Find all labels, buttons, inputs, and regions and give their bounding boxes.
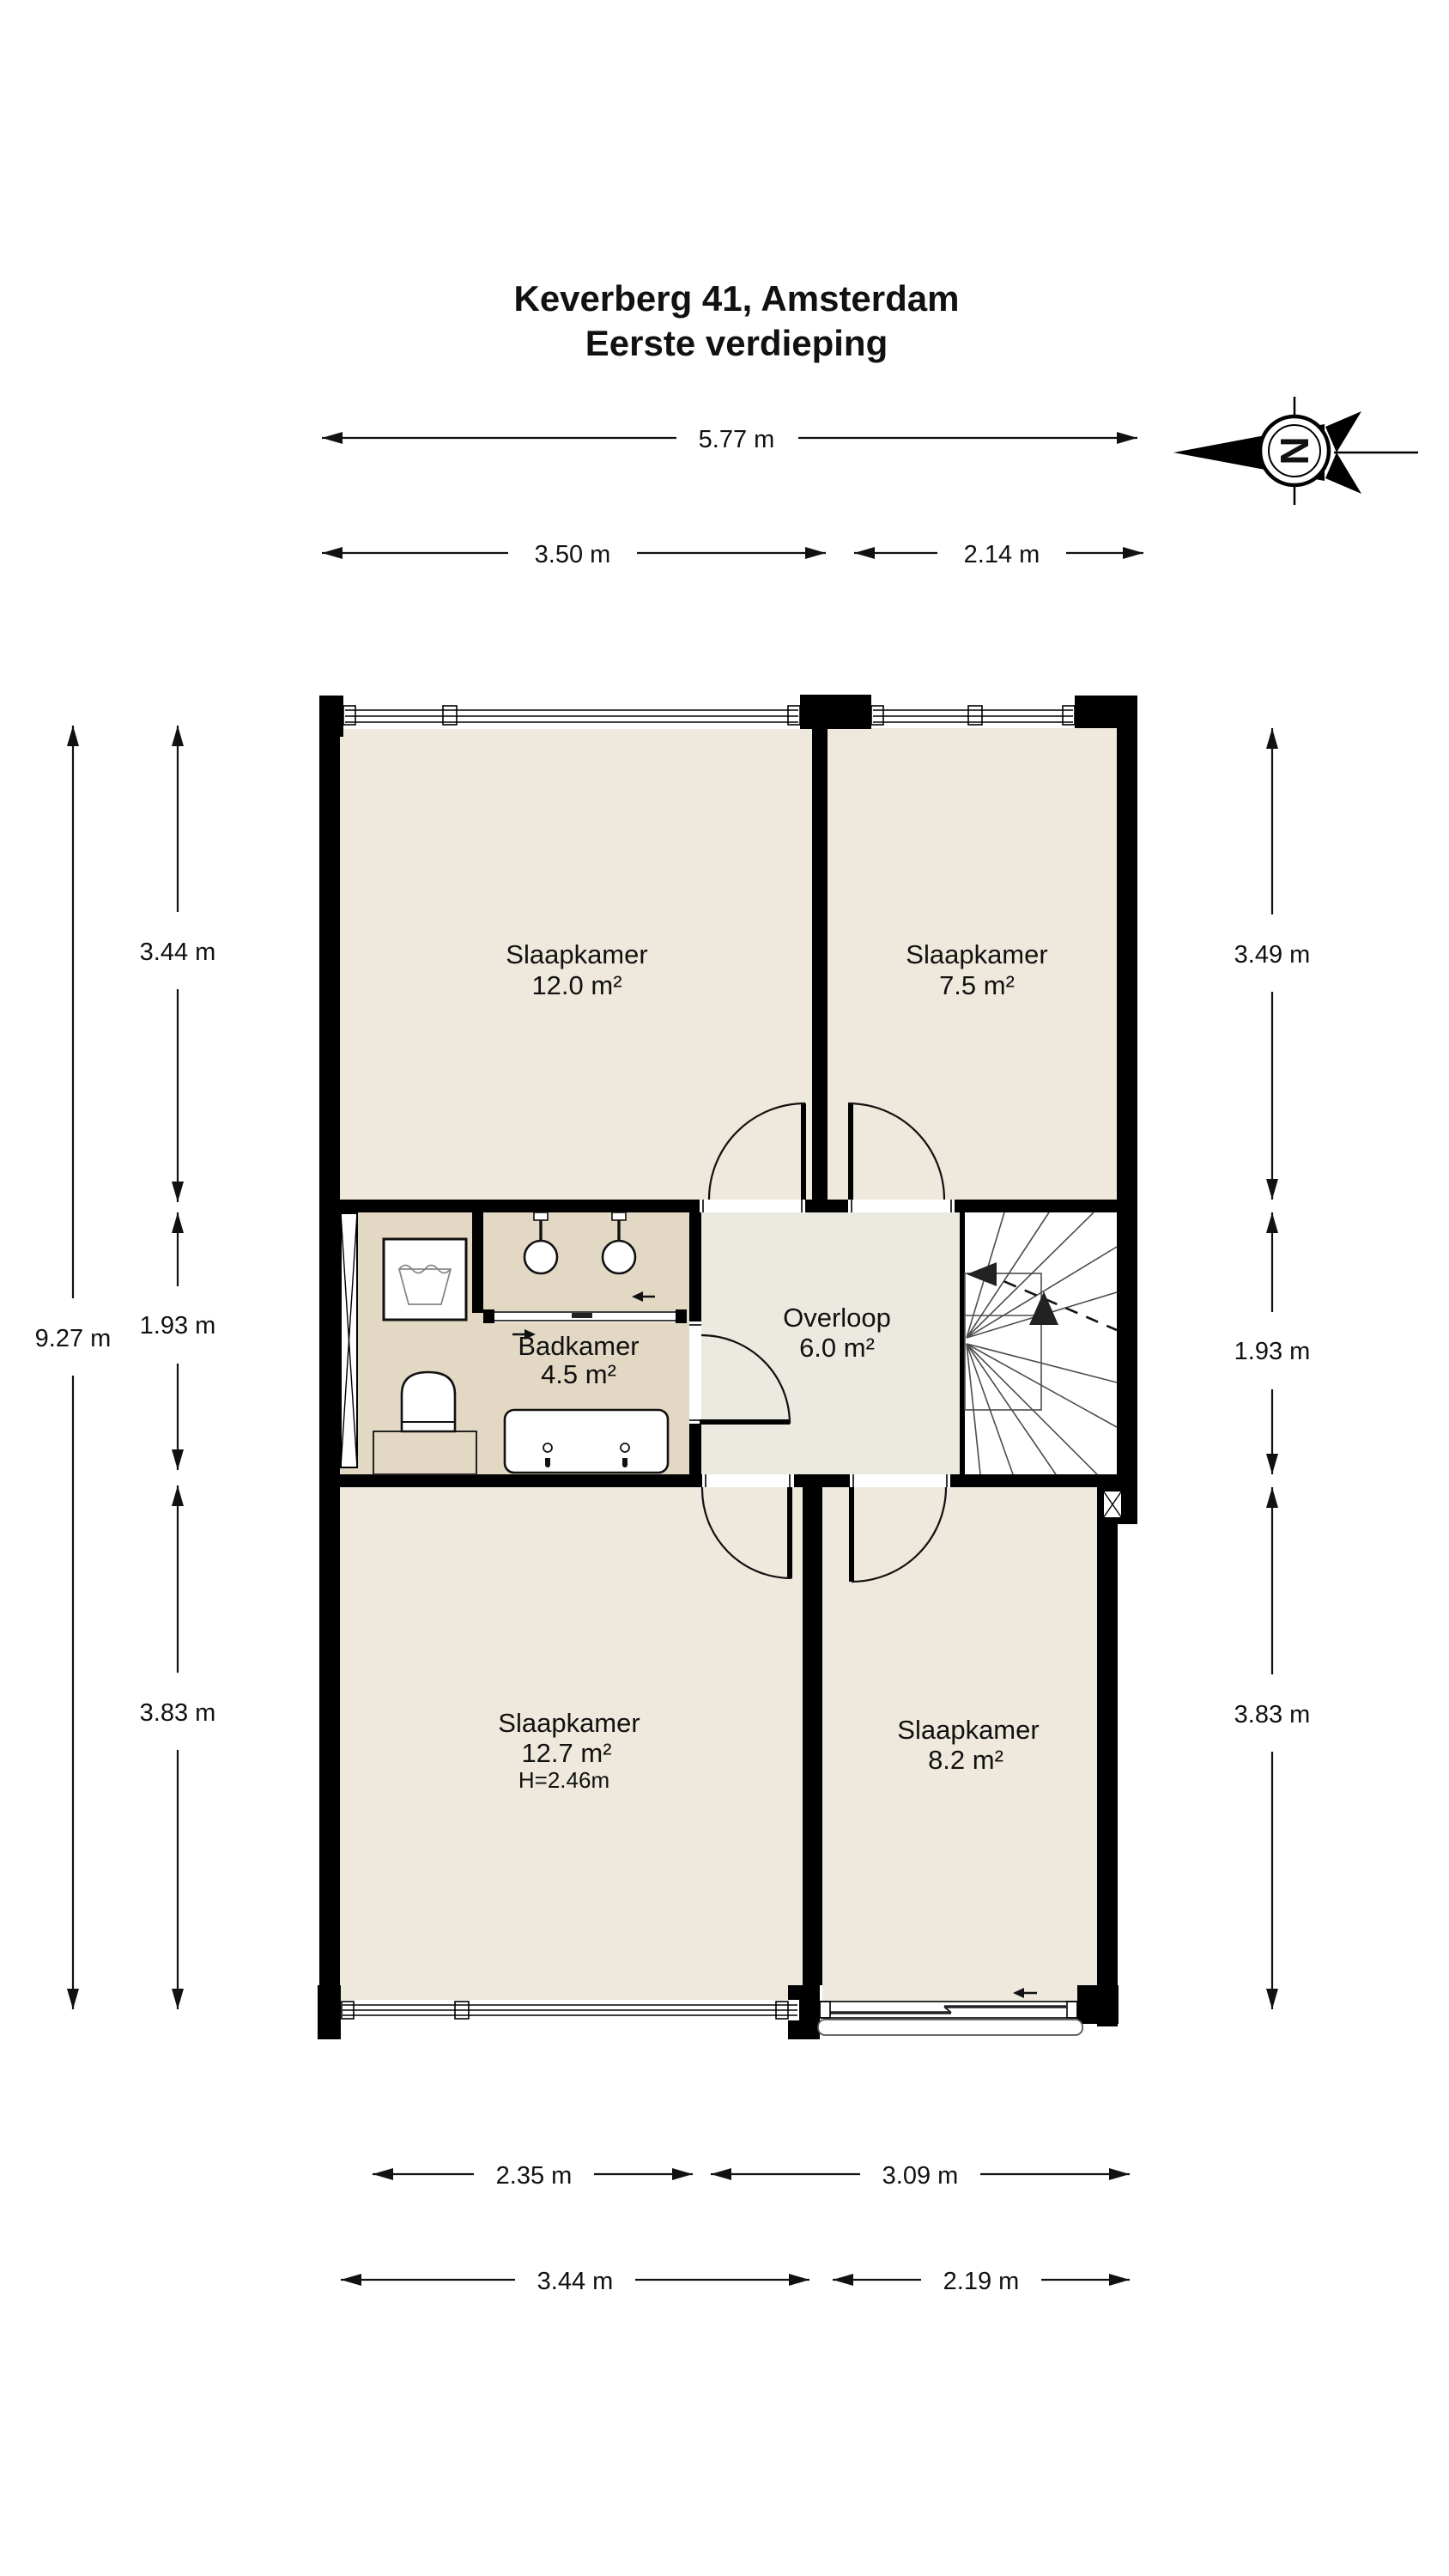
- dim-label: 9.27 m: [35, 1325, 112, 1352]
- compass-letter: N: [1272, 436, 1317, 465]
- dim-right-upper: 3.49 m: [1234, 728, 1311, 1200]
- dim-label: 3.50 m: [535, 541, 611, 568]
- dim-bottom-inner-right: 3.09 m: [711, 2162, 1130, 2190]
- dim-top-left: 3.50 m: [322, 541, 826, 568]
- sliding-door-badkamer: [483, 1309, 687, 1323]
- floorplan-drawing: Keverberg 41, Amsterdam Eerste verdiepin…: [0, 0, 1449, 2576]
- dim-bottom-outer-right: 2.19 m: [833, 2268, 1130, 2295]
- dim-top-total: 5.77 m: [322, 426, 1137, 453]
- washing-machine-icon: [384, 1239, 466, 1320]
- room-name: Overloop: [783, 1303, 891, 1333]
- room-area: 4.5 m²: [541, 1359, 616, 1389]
- room-area: 7.5 m²: [939, 970, 1015, 1000]
- dim-label: 5.77 m: [699, 426, 775, 453]
- dim-label: 3.44 m: [140, 939, 216, 966]
- room-height: H=2.46m: [518, 1767, 609, 1793]
- dim-right-middle: 1.93 m: [1234, 1212, 1311, 1474]
- dim-label: 2.14 m: [964, 541, 1040, 568]
- window-top-right: [871, 703, 1075, 727]
- window-bottom-left: [341, 2000, 799, 2020]
- dim-label: 2.35 m: [496, 2162, 573, 2190]
- dim-label: 2.19 m: [943, 2268, 1020, 2295]
- dim-label: 3.44 m: [537, 2268, 614, 2295]
- room-area: 12.0 m²: [531, 970, 621, 1000]
- room-floors: [340, 728, 1117, 2002]
- balcony-edge: [818, 2020, 1082, 2035]
- dim-label: 1.93 m: [1234, 1338, 1311, 1365]
- shaft-right: [1103, 1491, 1122, 1518]
- floorplan-page: Keverberg 41, Amsterdam Eerste verdiepin…: [0, 0, 1449, 2576]
- dim-left-upper: 3.44 m: [140, 726, 216, 1202]
- north-arrow-icon: N: [1173, 397, 1418, 505]
- room-area: 12.7 m²: [521, 1738, 611, 1768]
- page-title: Keverberg 41, Amsterdam Eerste verdiepin…: [513, 278, 959, 363]
- dim-left-total: 9.27 m: [35, 726, 112, 2009]
- sliding-door-balcony: [820, 2002, 1077, 2018]
- dim-label: 1.93 m: [140, 1312, 216, 1340]
- room-area: 8.2 m²: [928, 1745, 1003, 1775]
- dim-label: 3.49 m: [1234, 941, 1311, 969]
- dim-label: 3.83 m: [140, 1699, 216, 1727]
- room-name: Slaapkamer: [906, 939, 1047, 969]
- dim-label: 3.83 m: [1234, 1701, 1311, 1728]
- window-top-left: [343, 703, 800, 727]
- bathtub-icon: [505, 1410, 668, 1473]
- shaft-left: [341, 1213, 357, 1467]
- dim-left-lower: 3.83 m: [140, 1485, 216, 2009]
- title-line2: Eerste verdieping: [585, 323, 888, 363]
- dim-right-lower: 3.83 m: [1234, 1487, 1311, 2009]
- room-name: Slaapkamer: [897, 1715, 1039, 1745]
- room-name: Slaapkamer: [498, 1708, 640, 1738]
- dim-bottom-outer-left: 3.44 m: [341, 2268, 809, 2295]
- dim-bottom-inner-left: 2.35 m: [373, 2162, 693, 2190]
- room-area: 6.0 m²: [799, 1333, 875, 1363]
- title-line1: Keverberg 41, Amsterdam: [513, 278, 959, 319]
- dim-left-middle: 1.93 m: [140, 1212, 216, 1470]
- dim-top-right: 2.14 m: [854, 541, 1143, 568]
- dim-label: 3.09 m: [882, 2162, 959, 2190]
- room-name: Badkamer: [518, 1331, 639, 1361]
- room-name: Slaapkamer: [506, 939, 647, 969]
